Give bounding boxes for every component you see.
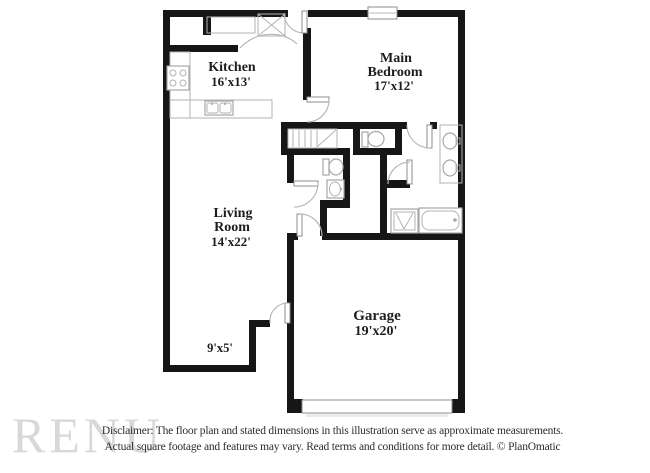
disclaimer-text: Disclaimer: The floor plan and stated di…	[25, 423, 640, 455]
kitchen-pantry-icon	[258, 14, 285, 36]
kitchen-counter-top	[207, 17, 255, 33]
wall-garage-top-right	[322, 233, 465, 240]
wall-kitchen-bedroom-divider	[303, 28, 311, 100]
wall-bottom-left	[163, 365, 256, 372]
window-top	[368, 7, 397, 19]
wall-halfbath-right	[343, 148, 350, 208]
shower-icon	[391, 209, 418, 233]
wall-garage-top-left	[287, 233, 298, 240]
bathroom-door	[407, 125, 432, 148]
bathtub-icon	[419, 208, 462, 233]
wall-closet-bottom	[380, 180, 410, 188]
wall-hall-top	[281, 122, 407, 129]
floor-plan-page: Kitchen 16'x13' Main Bedroom 17'x12' Liv…	[0, 0, 650, 473]
disclaimer-line-1: Disclaimer: The floor plan and stated di…	[25, 423, 640, 439]
kitchen-double-sink-icon	[205, 101, 233, 115]
patio-door	[270, 303, 290, 323]
halfbath-sink-icon	[327, 180, 344, 198]
living-room-label-1: Living	[214, 206, 253, 221]
wall-living-hall-stub	[287, 148, 294, 183]
vanity-sink-bottom-icon	[443, 160, 460, 176]
stove-icon	[167, 66, 189, 90]
disclaimer-line-2: Actual square footage and features may v…	[25, 439, 640, 455]
living-room-label-2: Room	[214, 220, 250, 235]
wall-left	[163, 10, 170, 372]
stairs	[288, 129, 337, 148]
main-bedroom-dims: 17'x12'	[374, 78, 414, 93]
wall-garage-bottom-left-stub	[287, 399, 303, 413]
floor-plan-drawing: Kitchen 16'x13' Main Bedroom 17'x12' Liv…	[0, 0, 650, 473]
vanity-sink-top-icon	[443, 133, 460, 149]
living-room-dims: 14'x22'	[211, 234, 251, 249]
kitchen-dims: 16'x13'	[211, 74, 251, 89]
bedroom-door	[307, 97, 329, 122]
nook-dims: 9'x5'	[207, 341, 233, 355]
garage-label: Garage	[353, 308, 401, 324]
wall-entry	[170, 45, 238, 52]
wall-wc-bottom	[353, 148, 402, 155]
kitchen-label: Kitchen	[208, 60, 256, 75]
living-room-hall-door	[294, 181, 318, 207]
halfbath-toilet-icon	[323, 159, 343, 175]
wc-toilet-icon	[362, 132, 384, 148]
wall-top-right	[397, 10, 465, 17]
wall-garage-bottom-right-stub	[452, 399, 465, 413]
wall-step-horizontal	[249, 320, 270, 327]
wall-closet-right	[380, 155, 387, 233]
garage-entry-door	[297, 214, 322, 236]
wall-top-mid	[308, 10, 368, 17]
garage-dims: 19'x20'	[355, 324, 398, 339]
wall-step-vertical	[249, 320, 256, 372]
main-bedroom-label-1: Main	[380, 51, 412, 66]
interior-walls	[170, 17, 437, 236]
garage-door	[302, 400, 452, 417]
